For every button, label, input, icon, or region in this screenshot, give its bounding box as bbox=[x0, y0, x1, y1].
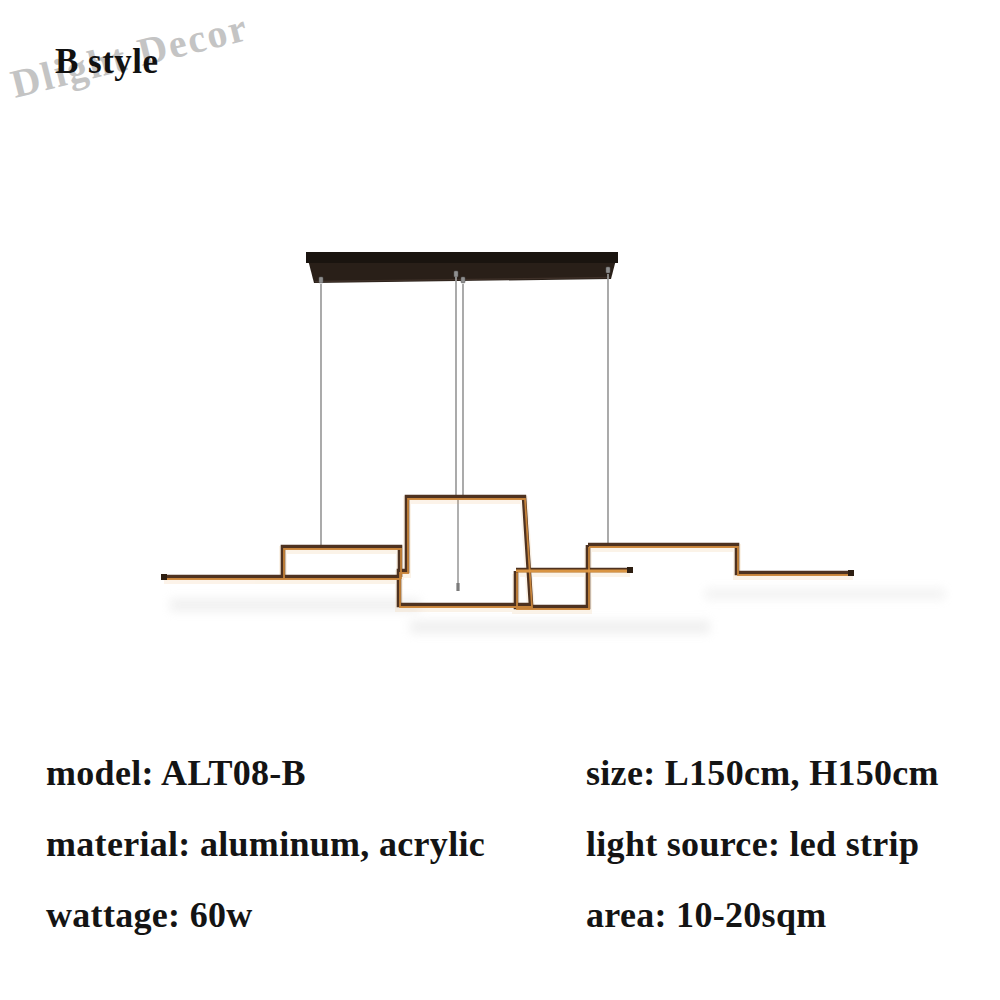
frame-center-square bbox=[399, 497, 531, 605]
spec-material: material: aluminum, acrylic bbox=[46, 824, 485, 864]
suspension-wires bbox=[321, 274, 608, 583]
spec-light-source: light source: led strip bbox=[586, 824, 939, 864]
spec-model: model: ALT08-B bbox=[46, 753, 485, 793]
spec-column-right: size: L150cm, H150cm light source: led s… bbox=[586, 753, 939, 966]
spec-size: size: L150cm, H150cm bbox=[586, 753, 939, 793]
product-listing-image: Dlight Decor B style bbox=[0, 0, 1000, 1000]
spec-area: area: 10-20sqm bbox=[586, 895, 939, 935]
inner-wire-tip bbox=[456, 583, 459, 591]
spec-wattage: wattage: 60w bbox=[46, 895, 485, 935]
ceiling-canopy bbox=[306, 252, 618, 283]
spec-column-left: model: ALT08-B material: aluminum, acryl… bbox=[46, 753, 485, 966]
